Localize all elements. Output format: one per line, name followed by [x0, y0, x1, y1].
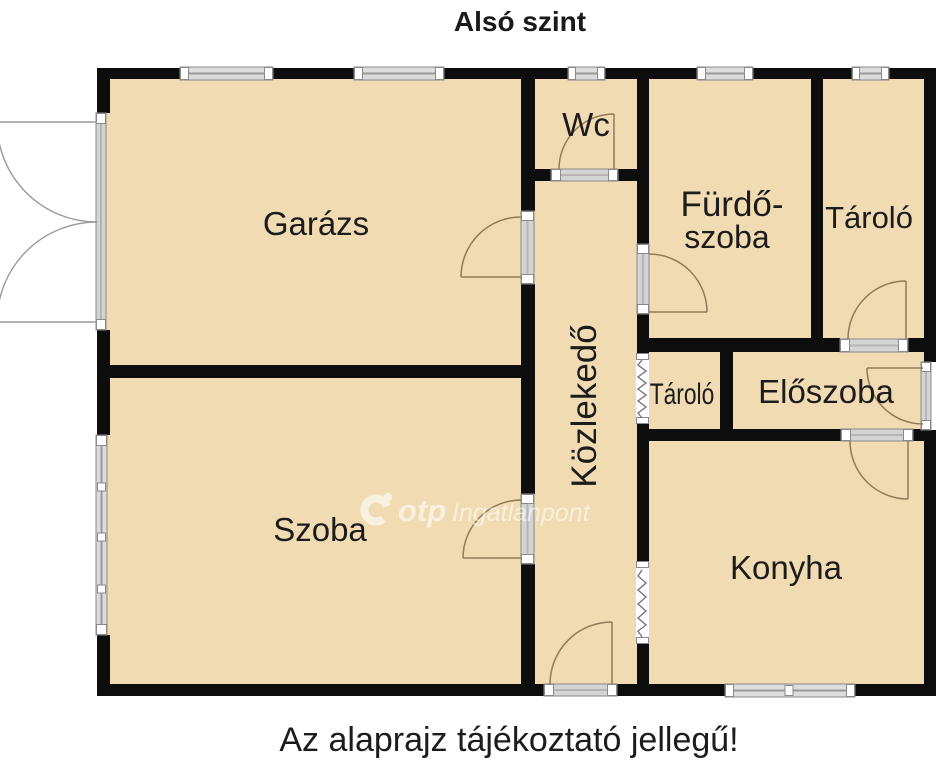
svg-text:Tároló: Tároló	[650, 377, 715, 411]
svg-text:Alsó szint: Alsó szint	[454, 6, 586, 37]
svg-text:otp: otp	[398, 493, 446, 528]
svg-text:Szoba: Szoba	[273, 511, 367, 548]
svg-text:Közlekedő: Közlekedő	[565, 324, 604, 487]
svg-text:Wc: Wc	[562, 106, 610, 143]
svg-text:Tároló: Tároló	[825, 200, 913, 235]
svg-text:szoba: szoba	[684, 219, 770, 255]
svg-text:Előszoba: Előszoba	[758, 373, 894, 410]
svg-text:Ingatlanpont: Ingatlanpont	[452, 499, 591, 527]
svg-text:Az alaprajz tájékoztató jelleg: Az alaprajz tájékoztató jellegű!	[279, 721, 738, 759]
svg-text:Konyha: Konyha	[730, 549, 843, 586]
svg-text:Garázs: Garázs	[263, 205, 369, 242]
